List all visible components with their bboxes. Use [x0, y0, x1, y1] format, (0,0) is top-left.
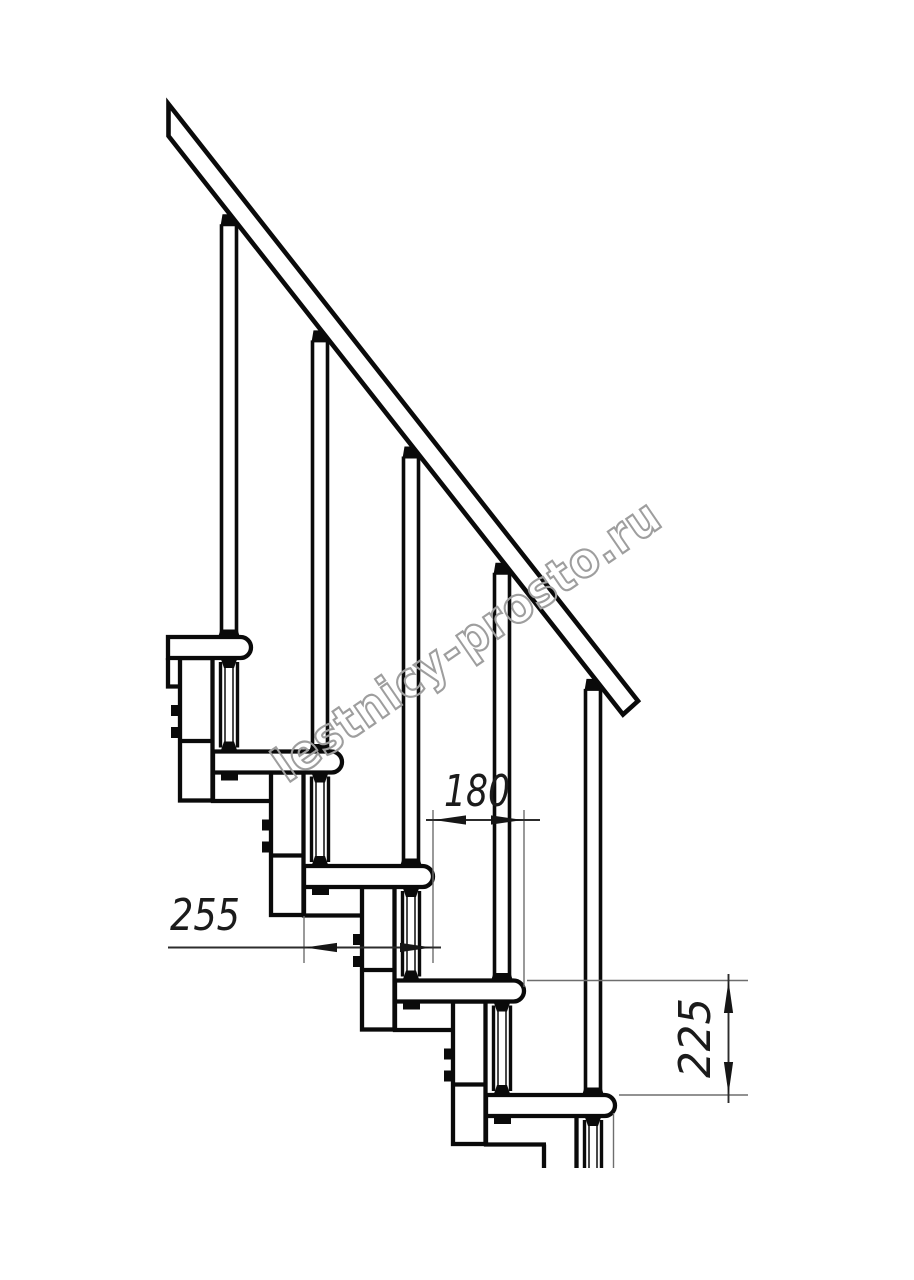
arrowhead	[305, 943, 337, 952]
tread	[486, 1095, 615, 1116]
tread	[304, 866, 433, 887]
watermark-text: lestnicy-prosto.ru	[262, 488, 671, 794]
drawing-canvas: 180255225lestnicy-prosto.ru	[0, 0, 914, 1280]
baluster-base-connector	[582, 1088, 604, 1096]
dimension-label-rise: 225	[670, 998, 721, 1078]
bolt-icon	[171, 705, 181, 716]
dimension-label-run: 180	[444, 766, 510, 817]
dimension-label-tread: 255	[170, 890, 240, 941]
bolt-icon	[444, 1071, 454, 1082]
baluster-base-connector	[218, 630, 240, 638]
staircase-structure	[168, 104, 638, 1168]
bolt-icon	[262, 842, 272, 853]
baluster-base-connector	[400, 859, 422, 867]
support-column	[180, 658, 213, 801]
arrowhead	[400, 943, 432, 952]
baluster-base-connector	[491, 973, 513, 981]
bolt-icon	[353, 934, 363, 945]
arrowhead	[724, 981, 733, 1013]
bolt-icon	[444, 1049, 454, 1060]
support-column	[362, 887, 395, 1030]
tread	[395, 981, 524, 1002]
tread	[168, 637, 251, 658]
arrowhead	[724, 1062, 733, 1094]
support-column	[544, 1116, 577, 1168]
support-column	[453, 1002, 486, 1145]
bolt-icon	[262, 820, 272, 831]
bolt-icon	[353, 956, 363, 967]
staircase-drawing: 180255225lestnicy-prosto.ru	[0, 0, 914, 1280]
support-column	[271, 773, 304, 916]
bolt-icon	[171, 727, 181, 738]
